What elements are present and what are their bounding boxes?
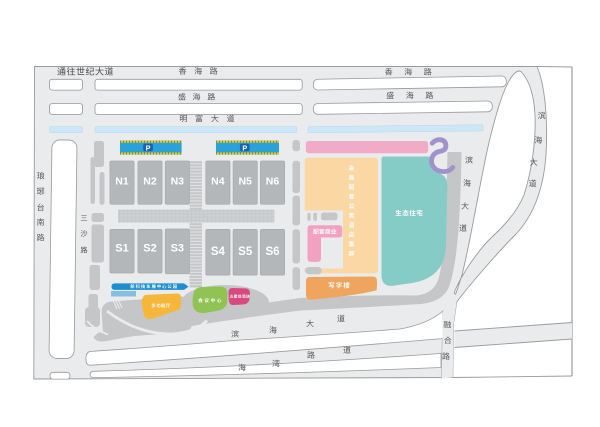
svg-text:S3: S3 [171, 243, 184, 255]
svg-text:S1: S1 [115, 243, 128, 255]
svg-text:S6: S6 [265, 246, 279, 258]
svg-text:S2: S2 [143, 243, 156, 255]
svg-text:N2: N2 [143, 175, 157, 187]
svg-text:N4: N4 [211, 175, 225, 187]
svg-text:N5: N5 [238, 175, 252, 187]
svg-text:S4: S4 [211, 246, 226, 258]
svg-text:N3: N3 [171, 175, 185, 187]
svg-text:P: P [242, 143, 247, 152]
svg-text:N1: N1 [115, 175, 129, 187]
svg-text:S5: S5 [238, 246, 253, 258]
svg-text:N6: N6 [266, 175, 280, 187]
svg-text:P: P [146, 143, 151, 152]
